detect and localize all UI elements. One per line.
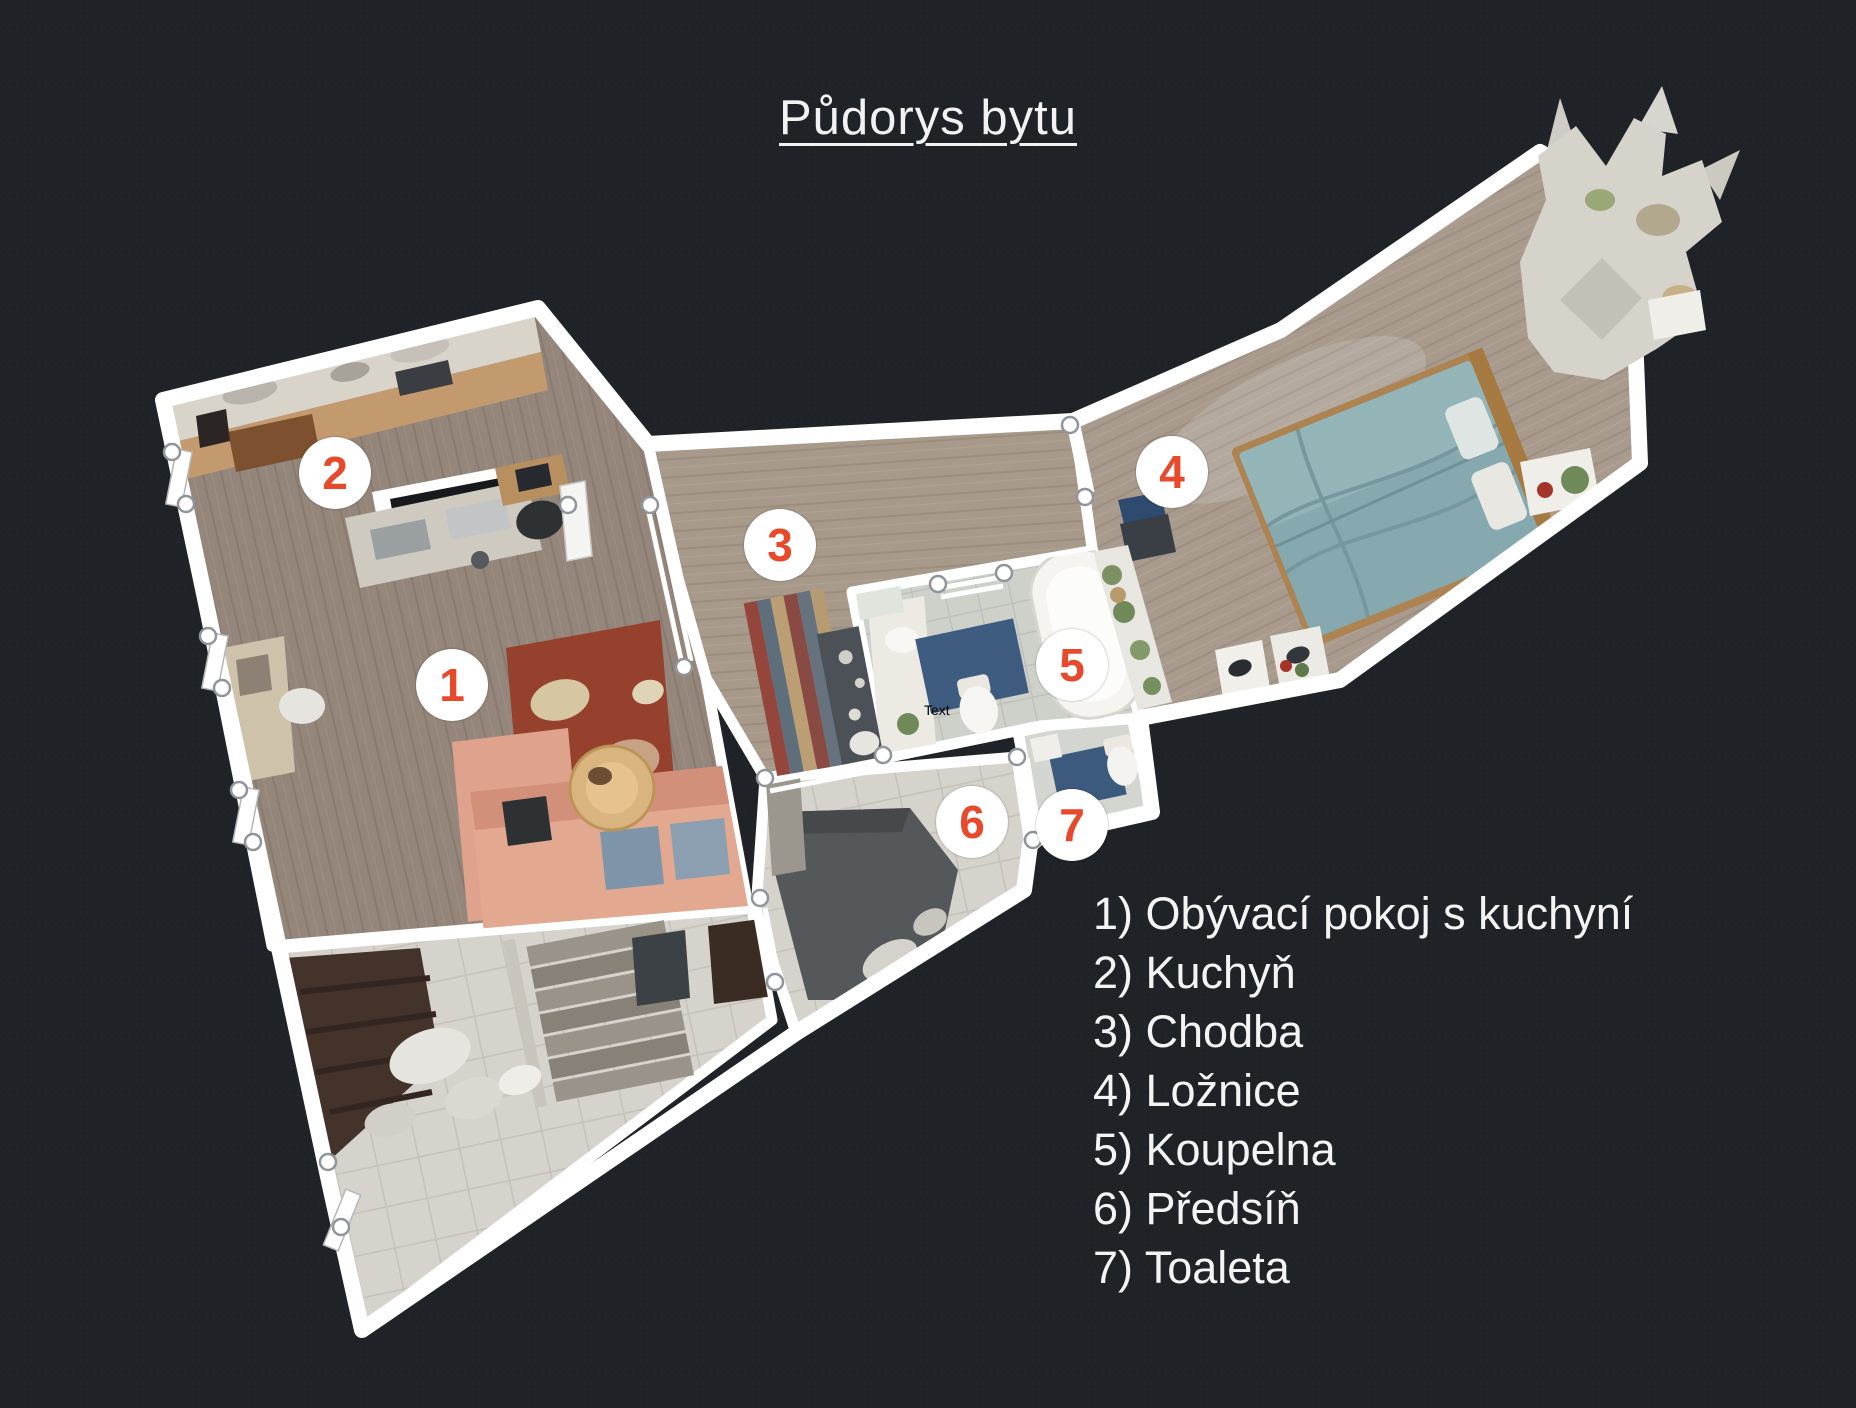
legend-item-3: 3) Chodba	[1093, 1002, 1633, 1061]
room-marker-6-number: 6	[959, 795, 985, 849]
room-marker-3-number: 3	[767, 518, 793, 572]
legend-item-2: 2) Kuchyň	[1093, 943, 1633, 1002]
room-marker-7[interactable]: 7	[1036, 789, 1108, 861]
legend-item-7: 7) Toaleta	[1093, 1238, 1633, 1297]
room-marker-4[interactable]: 4	[1136, 436, 1208, 508]
room-marker-5-number: 5	[1059, 638, 1085, 692]
room-marker-1-number: 1	[439, 658, 465, 712]
legend-item-1: 1) Obývací pokoj s kuchyní	[1093, 884, 1633, 943]
header: Půdorys bytu	[0, 90, 1856, 146]
room-marker-5[interactable]: 5	[1036, 629, 1108, 701]
room-marker-6[interactable]: 6	[936, 786, 1008, 858]
room-marker-2-number: 2	[322, 446, 348, 500]
text-annotation: Text	[924, 702, 950, 718]
legend-item-5: 5) Koupelna	[1093, 1120, 1633, 1179]
legend: 1) Obývací pokoj s kuchyní 2) Kuchyň 3) …	[1093, 884, 1633, 1297]
room-marker-2[interactable]: 2	[299, 437, 371, 509]
screenshot-root: Půdorys bytu 1 2 3 4 5 6 7 Text 1) Obýva…	[0, 0, 1856, 1408]
room-marker-3[interactable]: 3	[744, 509, 816, 581]
legend-item-6: 6) Předsíň	[1093, 1179, 1633, 1238]
room-marker-4-number: 4	[1159, 445, 1185, 499]
room-marker-1[interactable]: 1	[416, 649, 488, 721]
room-marker-7-number: 7	[1059, 798, 1085, 852]
legend-item-4: 4) Ložnice	[1093, 1061, 1633, 1120]
page-title: Půdorys bytu	[779, 91, 1077, 145]
